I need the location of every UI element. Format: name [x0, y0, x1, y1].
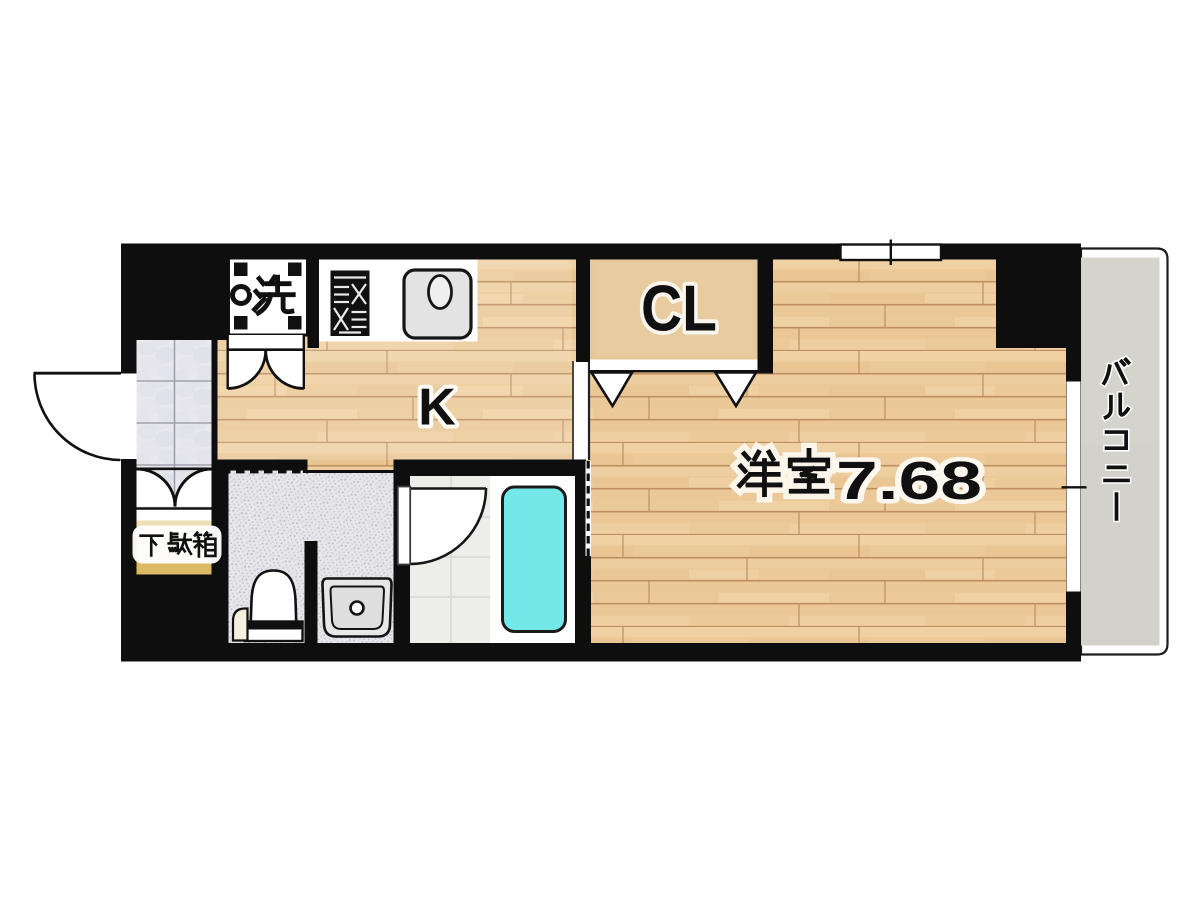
svg-text:CL: CL — [641, 272, 717, 345]
svg-text:7.68: 7.68 — [836, 451, 982, 511]
svg-text:K: K — [418, 379, 456, 437]
